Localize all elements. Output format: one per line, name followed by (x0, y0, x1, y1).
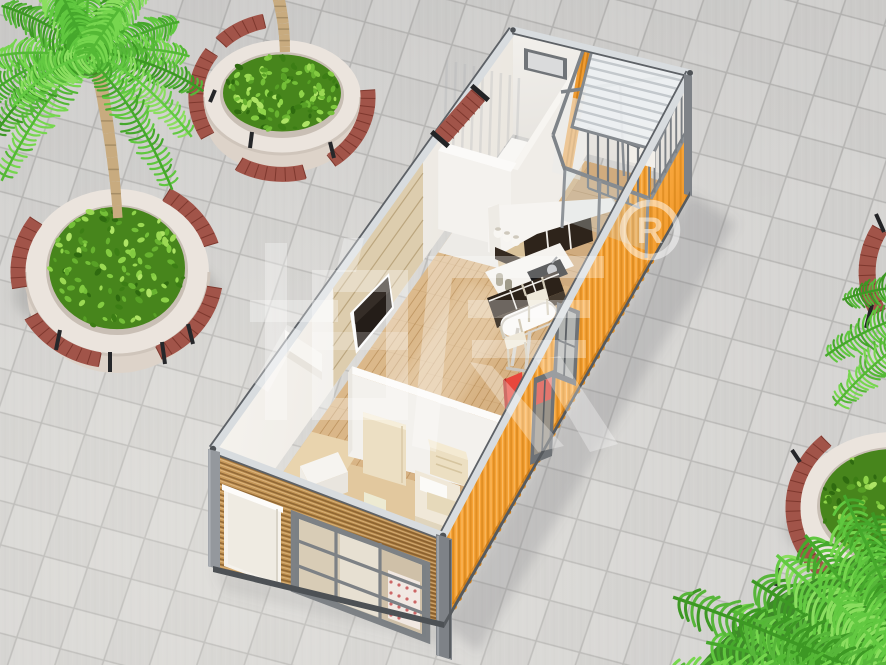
svg-text:R: R (637, 210, 664, 251)
